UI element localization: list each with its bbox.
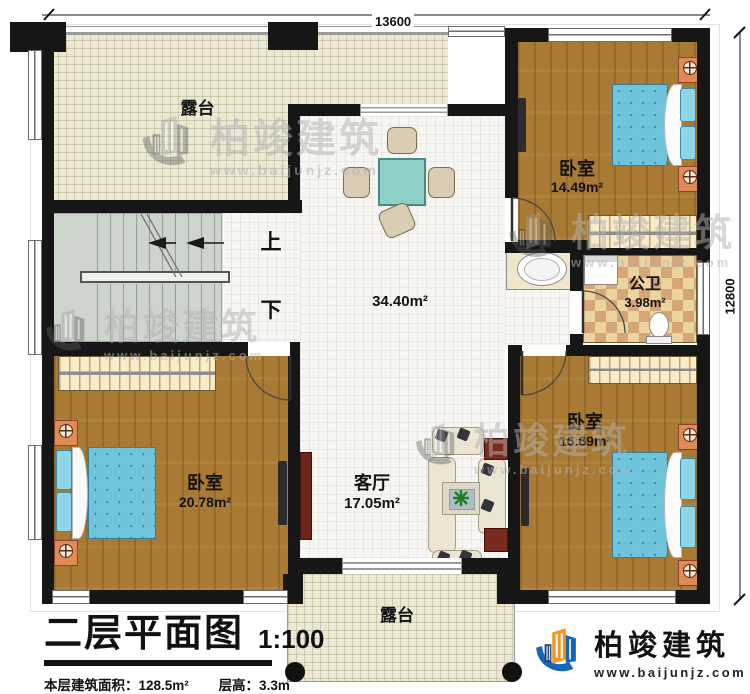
brand-name: 柏竣建筑 [594, 622, 746, 664]
wall-pillar [268, 22, 318, 50]
toilet [649, 312, 669, 338]
room-area-bathroom: 3.98m² [614, 296, 676, 310]
wall [42, 200, 302, 213]
window [28, 445, 42, 540]
terrace-top-floor-left [42, 104, 288, 204]
brand-logo: 柏竣建筑 www.baijunjz.com [532, 622, 746, 680]
terrace-parapet [42, 32, 448, 35]
pillow [680, 506, 696, 548]
room-label-terrace-top: 露台 [160, 100, 235, 118]
stair-handrail [80, 271, 230, 283]
wall-pillar [10, 22, 66, 52]
bed [612, 84, 668, 166]
brand-logo-icon [532, 624, 586, 678]
room-label-living: 客厅 [332, 474, 412, 493]
room-label-bedroom-bl: 卧室 [165, 474, 245, 493]
floor-plan: 13600 12800 露台 34.40m² 卧室 [0, 0, 750, 694]
wall-thin [583, 248, 697, 255]
room-label-bedroom-br: 卧室 [545, 413, 625, 432]
pillow [56, 450, 72, 490]
window [548, 28, 672, 42]
chair [387, 127, 417, 154]
dimension-line-right [739, 32, 741, 600]
title-block: 二层平面图 1:100 本层建筑面积：128.5m² 层高：3.3m [44, 602, 325, 694]
pillow [680, 126, 696, 160]
wash-basin-inner [524, 258, 560, 281]
wall-pillar [497, 574, 517, 604]
side-table [484, 528, 508, 552]
door-opening [248, 342, 290, 356]
stair-treads-upper [97, 214, 221, 271]
wall [42, 32, 54, 604]
wall [288, 104, 300, 213]
chair [343, 167, 370, 198]
washing-machine [584, 255, 618, 285]
floor-area-text: 本层建筑面积：128.5m² [44, 678, 189, 693]
hall-area-label: 34.40m² [340, 294, 460, 310]
room-label-bathroom: 公卫 [614, 277, 676, 294]
room-label-terrace-bottom: 露台 [357, 607, 437, 625]
wall [462, 558, 508, 574]
room-area-living: 17.05m² [332, 496, 412, 512]
wall [448, 104, 505, 116]
tv [278, 461, 287, 525]
brand-url: www.baijunjz.com [594, 665, 746, 680]
pillow [56, 492, 72, 532]
pillow [680, 458, 696, 500]
title-underline [44, 660, 272, 666]
tv [518, 98, 526, 152]
pillow [680, 88, 696, 122]
bed [88, 447, 156, 539]
wall [570, 240, 583, 291]
dimension-width: 13600 [372, 14, 414, 29]
wall [42, 342, 248, 356]
room-area-bedroom-tr: 14.49m² [537, 180, 617, 195]
stair-treads-lower [97, 284, 221, 341]
door-opening [522, 345, 566, 356]
wall [566, 345, 710, 356]
dining-table [378, 158, 426, 206]
window [28, 50, 42, 140]
window [28, 240, 42, 355]
stairs-down-label: 下 [256, 300, 286, 322]
nightstand [54, 540, 78, 566]
wardrobe [588, 356, 697, 384]
chair [428, 167, 455, 198]
window [448, 26, 505, 37]
room-area-bedroom-br: 16.69m² [545, 434, 625, 449]
tv-cabinet [300, 452, 312, 540]
wardrobe [58, 356, 216, 391]
floor-height-text: 层高：3.3m [219, 678, 290, 693]
coffee-table [442, 482, 480, 515]
wall [300, 558, 342, 574]
room-area-bedroom-bl: 20.78m² [165, 495, 245, 510]
room-label-bedroom-tr: 卧室 [537, 160, 617, 179]
plan-title: 二层平面图 [44, 602, 244, 657]
terrace-sliding-door [360, 104, 448, 116]
toilet-tank [646, 336, 672, 344]
column [502, 662, 522, 682]
nightstand [54, 420, 78, 446]
dimension-height: 12800 [723, 264, 738, 330]
bed [612, 452, 668, 558]
wardrobe [588, 215, 697, 252]
door-opening [570, 291, 583, 334]
wall [505, 28, 518, 198]
wall [288, 342, 300, 604]
plan-scale: 1:100 [258, 624, 325, 657]
window [548, 590, 676, 604]
window [697, 262, 710, 335]
side-table [484, 438, 508, 460]
tv [521, 468, 529, 526]
stairs-up-label: 上 [256, 232, 286, 254]
terrace-sliding-door [342, 558, 462, 574]
wall [508, 345, 520, 604]
terrace-top-floor [42, 32, 448, 104]
door-opening [505, 198, 518, 242]
